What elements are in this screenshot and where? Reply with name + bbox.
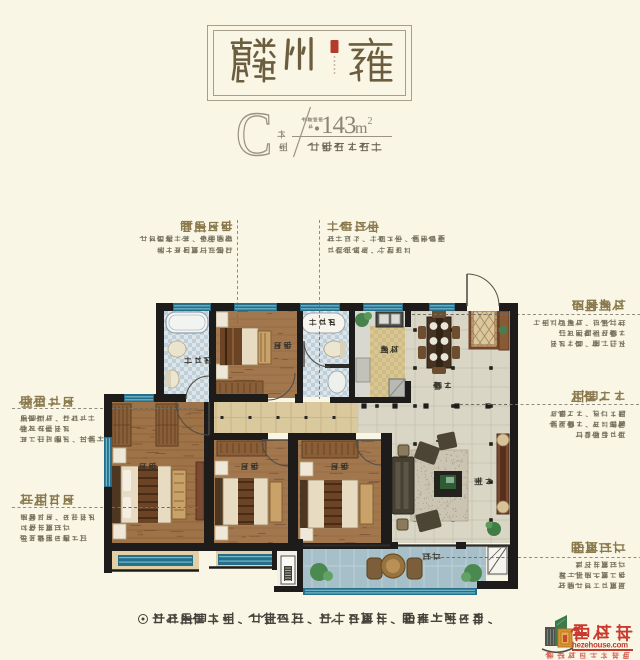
- svg-text:m: m: [355, 120, 368, 137]
- svg-text:2: 2: [368, 116, 373, 127]
- svg-text:143: 143: [321, 112, 356, 139]
- svg-text:C: C: [236, 100, 272, 169]
- svg-text:hezehouse.com: hezehouse.com: [572, 641, 628, 650]
